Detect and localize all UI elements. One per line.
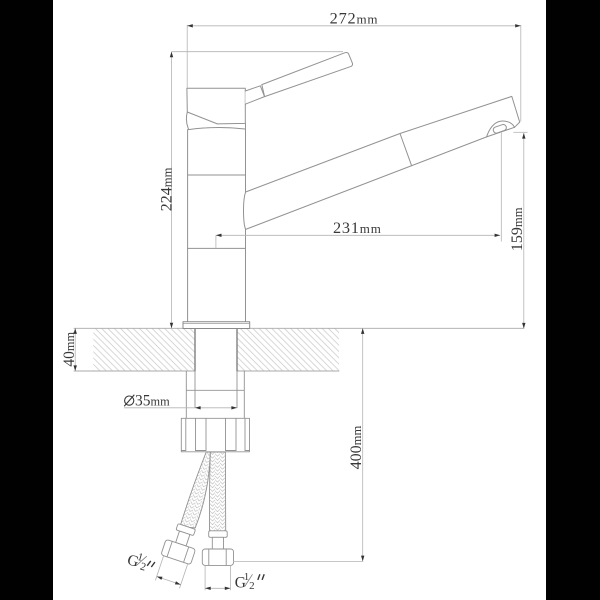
- svg-text:40mm: 40mm: [61, 332, 78, 367]
- svg-text:231mm: 231mm: [333, 218, 382, 237]
- svg-text:159mm: 159mm: [509, 207, 526, 251]
- svg-text:35mm: 35mm: [135, 393, 170, 410]
- svg-text:224mm: 224mm: [159, 167, 176, 211]
- svg-text:400mm: 400mm: [348, 426, 365, 470]
- svg-text:272mm: 272mm: [330, 9, 379, 28]
- svg-text:2: 2: [249, 580, 255, 592]
